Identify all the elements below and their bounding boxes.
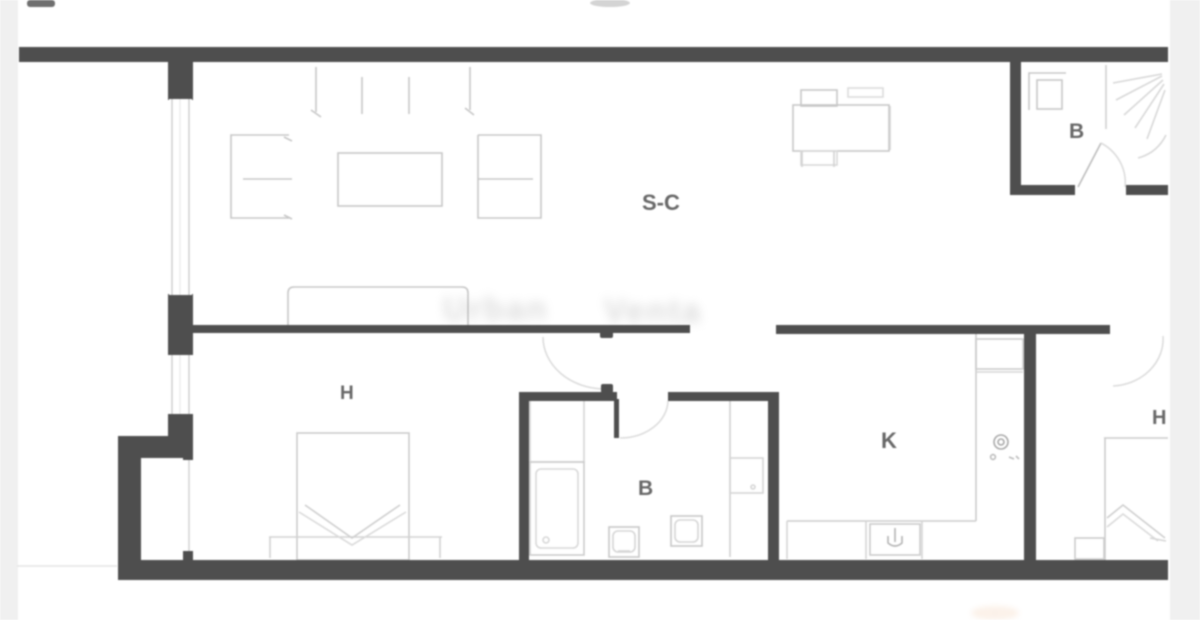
svg-text:B: B	[638, 477, 653, 500]
svg-text:H: H	[1152, 407, 1166, 429]
svg-text:H: H	[340, 383, 354, 404]
svg-text:S-C: S-C	[642, 190, 680, 215]
svg-text:K: K	[881, 428, 897, 453]
svg-text:Urban: Urban	[443, 290, 548, 327]
svg-text:Venta: Venta	[604, 292, 702, 329]
svg-text:B: B	[1069, 120, 1084, 143]
